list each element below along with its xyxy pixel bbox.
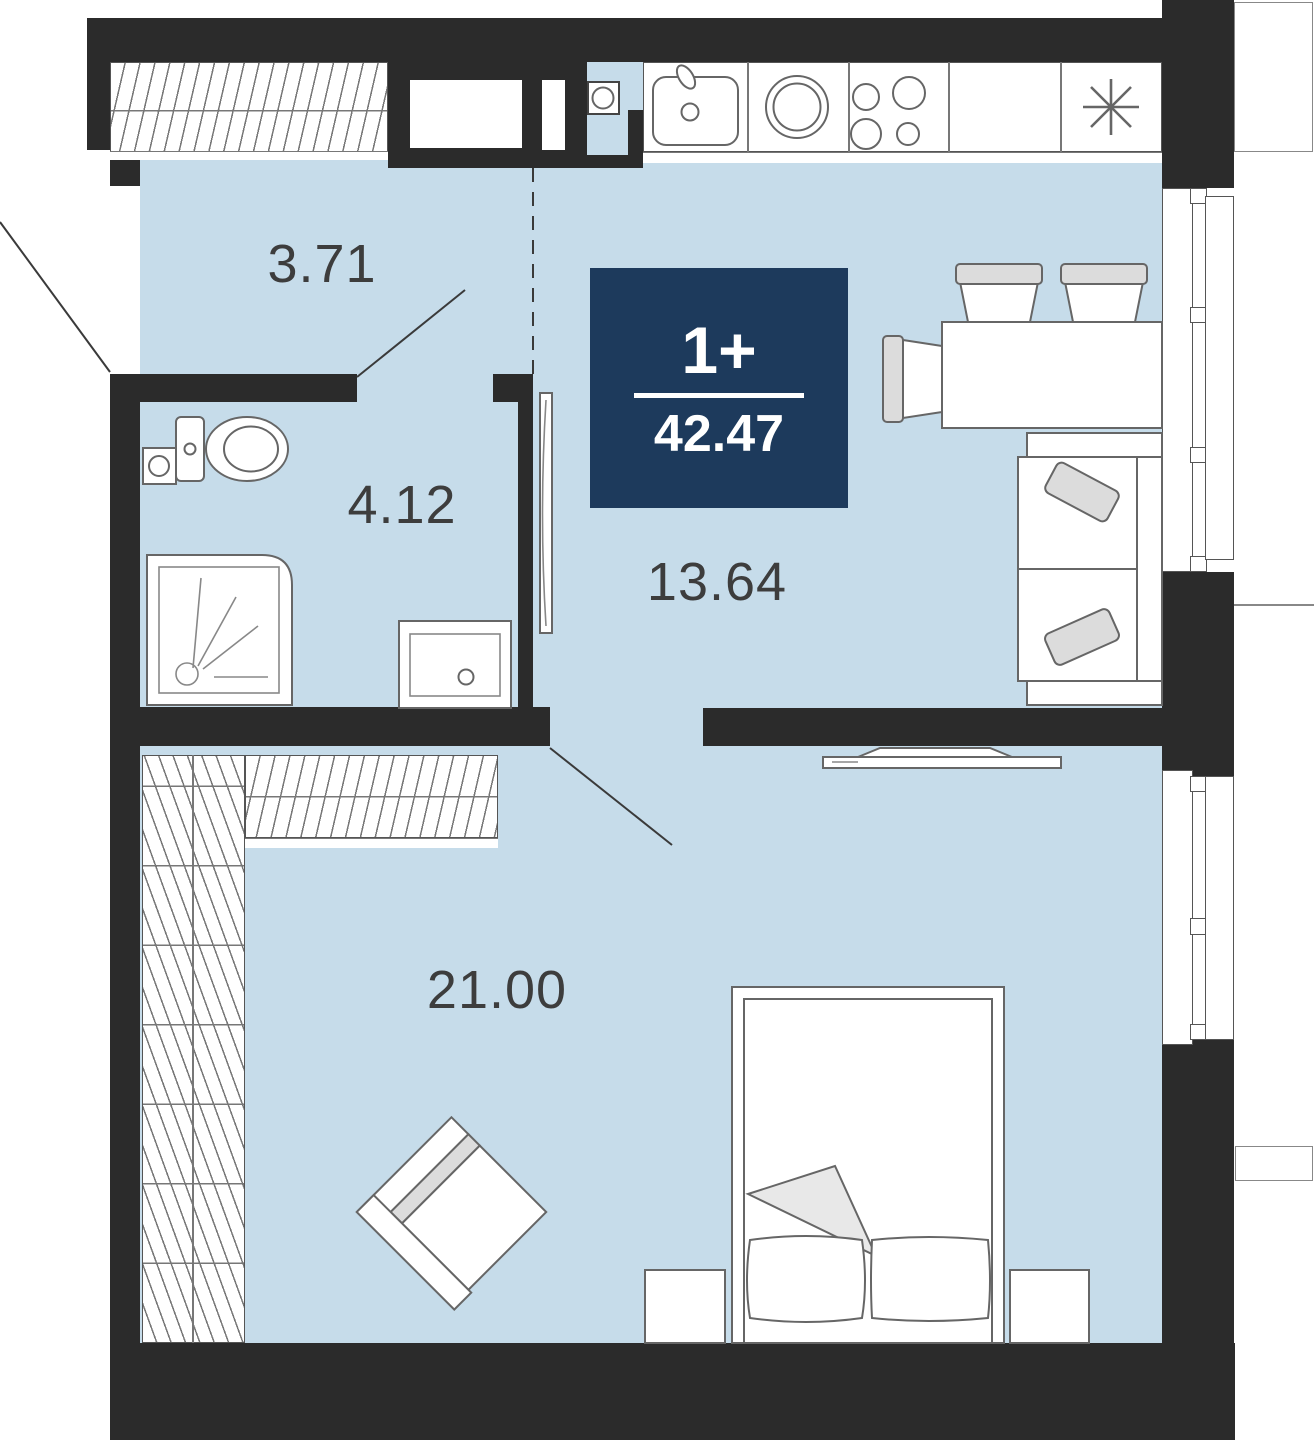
floor-plan: 1+ 42.47 3.71 4.12 13.64 21.00 — [0, 0, 1314, 1446]
wall-top — [87, 18, 1162, 62]
counter-front-edge — [643, 152, 1162, 163]
room-area-label-hallway: 3.71 — [267, 233, 376, 295]
wall-bottom — [110, 1343, 1235, 1440]
storage-niche — [410, 80, 522, 148]
room-area-label-bathroom: 4.12 — [347, 474, 456, 536]
window-sill-top — [1162, 188, 1193, 572]
badge-divider — [634, 393, 804, 398]
wall-bathroom-top — [110, 374, 357, 402]
hallway-wardrobe-shelf — [110, 151, 388, 160]
wardrobe-divider — [192, 755, 194, 1343]
room-area-label-kitchen-living: 13.64 — [647, 551, 787, 613]
badge-rooms-label: 1+ — [681, 317, 756, 383]
washer-recess-top — [628, 62, 643, 110]
window-outer-top — [1205, 196, 1234, 560]
window-frame-top — [1192, 188, 1206, 572]
counter-divider — [747, 62, 749, 152]
neighbor-balcony-bottom — [1235, 1146, 1313, 1181]
neighbor-line-middle — [1234, 604, 1314, 606]
bedroom-wardrobe-top — [245, 755, 498, 838]
apartment-badge: 1+ 42.47 — [590, 268, 848, 508]
bedroom-wardrobe-shelf — [245, 838, 498, 848]
shaft-slot — [542, 80, 565, 150]
window-outer-bottom — [1205, 776, 1234, 1040]
wall-bathroom-living — [518, 402, 533, 746]
wall-right-middle — [1162, 572, 1234, 776]
entrance-door-swing — [0, 222, 110, 372]
counter-divider — [948, 62, 950, 152]
floor-door-gap — [550, 708, 703, 746]
window-frame-bottom — [1192, 776, 1206, 1040]
wall-left-main — [110, 374, 140, 1343]
hallway-wardrobe — [110, 62, 388, 160]
counter-divider — [1060, 62, 1062, 152]
window-sill-bottom — [1162, 770, 1193, 1045]
counter-divider — [848, 62, 850, 152]
wall-bedroom-top — [703, 708, 1162, 746]
wall-left-upper — [87, 18, 110, 150]
washing-machine — [587, 81, 620, 115]
neighbor-balcony-top — [1234, 2, 1313, 152]
room-area-label-bedroom: 21.00 — [427, 959, 567, 1021]
badge-total-area: 42.47 — [654, 408, 784, 460]
kitchen-counter — [643, 62, 1162, 152]
wall-bathroom-bottom — [110, 707, 550, 746]
wall-bathroom-top-stub — [493, 374, 533, 402]
wall-right-corner — [1162, 0, 1234, 188]
